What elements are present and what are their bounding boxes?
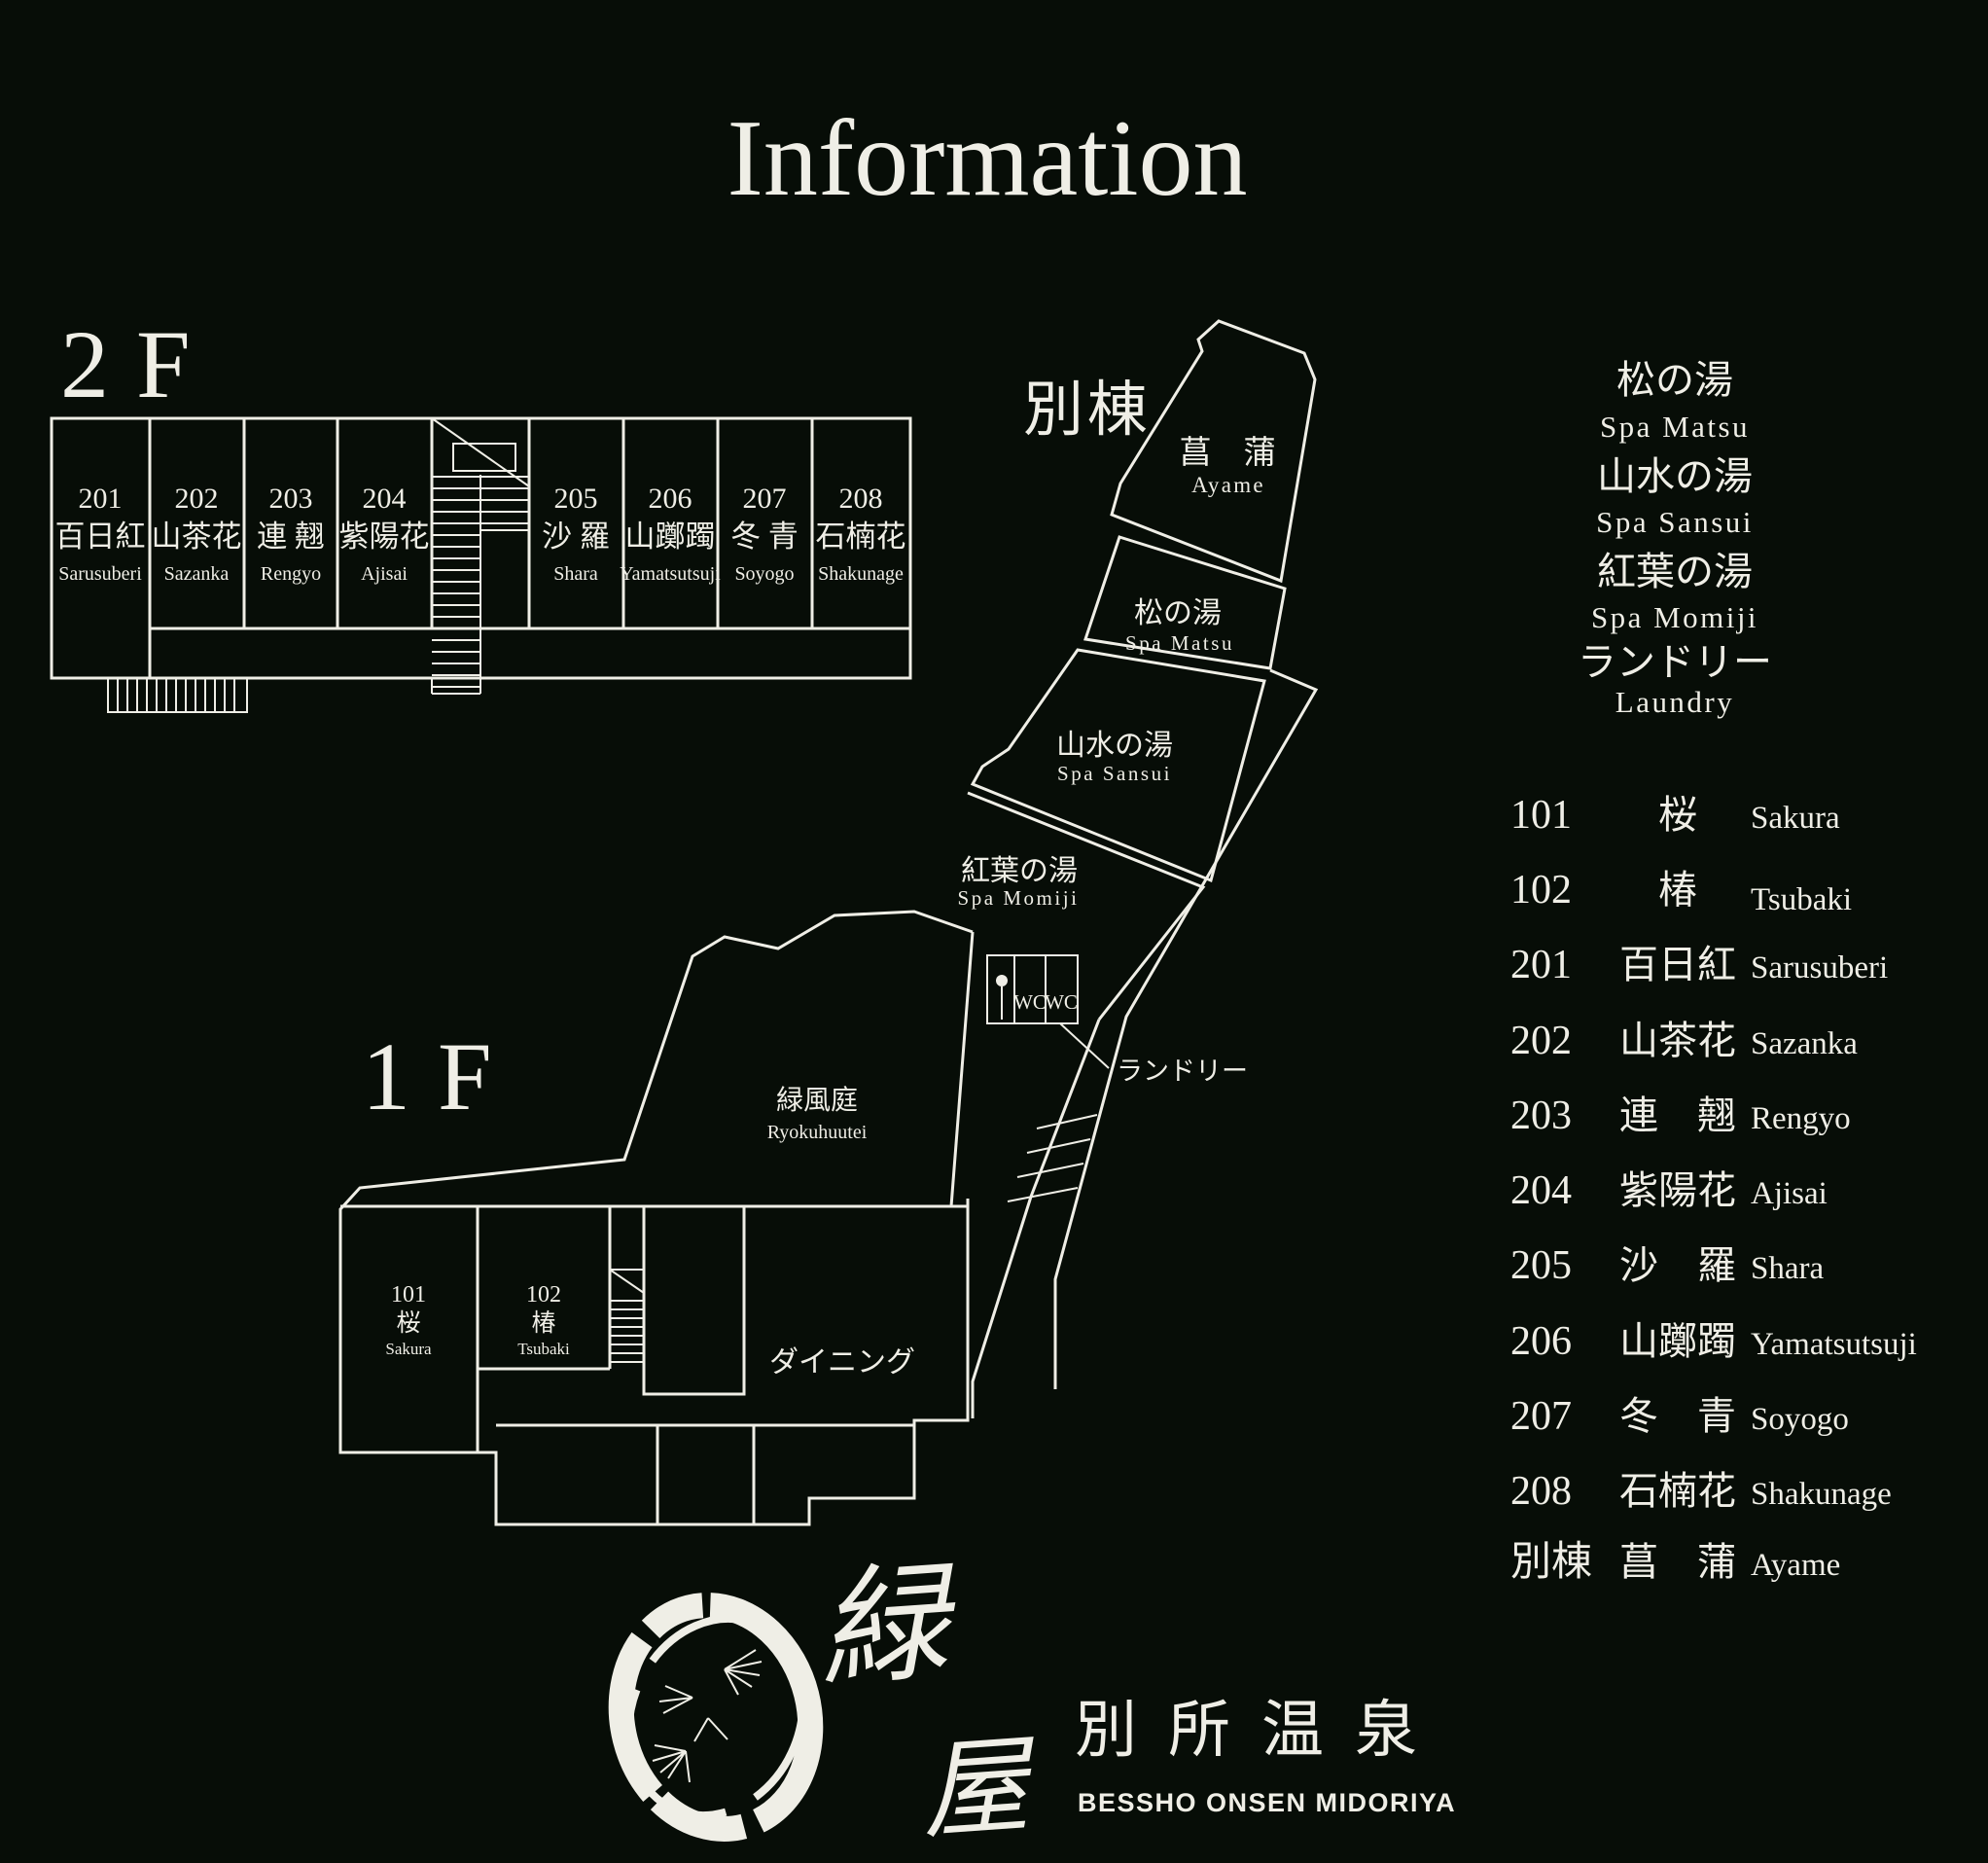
list-number: 208 [1510,1469,1572,1514]
list-number: 202 [1510,1019,1572,1063]
floor1-room-101: 101 桜 Sakura [385,1282,432,1358]
room-kanji: 冬 青 [730,519,799,554]
floor2-room-207: 207 冬 青 Soyogo [730,483,799,585]
list-number: 204 [1510,1168,1572,1213]
list-number: 207 [1510,1394,1572,1439]
room-list-row-101: 101 桜 Sakura [1510,793,1840,838]
walkway-ramp-hatch [1008,1115,1097,1201]
room-number: 101 [391,1282,426,1308]
list-kanji: 菖 蒲 [1619,1540,1736,1584]
list-romaji: Soyogo [1751,1402,1849,1437]
annex-plan: 別棟 菖 蒲 Ayame [1023,321,1315,581]
room-romaji: Sakura [385,1340,432,1358]
room-number: 208 [839,483,883,515]
room-romaji: Yamatsutsuji [620,563,721,585]
list-number: 205 [1510,1243,1572,1288]
room-list-row-207: 207 冬 青 Soyogo [1510,1394,1849,1439]
legend-spa-matsu-jp: 松の湯 [1616,358,1733,402]
room-romaji: Rengyo [261,563,321,585]
floor1-lower-walls [496,1425,914,1524]
room-romaji: Ajisai [361,563,408,585]
room-number: 203 [269,483,313,515]
room-number: 202 [175,483,219,515]
list-romaji: Sarusuberi [1751,950,1888,985]
room-list-row-201: 201 百日紅 Sarusuberi [1510,943,1888,987]
floor2-room-202: 202 山茶花 Sazanka [152,483,242,585]
laundry-label: ランドリー [1117,1057,1248,1086]
room-kanji: 紫陽花 [339,519,430,554]
list-kanji: 紫陽花 [1619,1168,1736,1212]
logo-kanji-midori: 緑 [814,1551,963,1703]
wc-label-2: WC [1045,990,1078,1014]
spa-matsu-jp: 松の湯 [1134,597,1222,629]
room-kanji: 石楠花 [816,519,906,554]
spa-momiji-jp: 紅葉の湯 [961,855,1078,887]
room-kanji: 山茶花 [152,519,242,554]
floor2-room-204: 204 紫陽花 Ajisai [339,483,430,585]
list-number: 102 [1510,868,1572,913]
list-kanji: 山躑躅 [1619,1319,1736,1363]
room-romaji: Sarusuberi [58,563,142,585]
list-kanji: 桜 [1658,793,1697,837]
legend-spa-sansui-en: Spa Sansui [1596,505,1754,539]
garden-jp: 緑風庭 [776,1085,858,1116]
room-list-row-208: 208 石楠花 Shakunage [1510,1469,1892,1514]
list-kanji: 山茶花 [1619,1019,1736,1062]
floor2-room-201: 201 百日紅 Sarusuberi [55,483,146,585]
room-kanji: 桜 [396,1309,420,1337]
list-kanji: 百日紅 [1619,943,1736,986]
list-romaji: Yamatsutsuji [1751,1327,1917,1362]
room-number: 207 [743,483,787,515]
floor2-room-208: 208 石楠花 Shakunage [816,483,906,585]
list-romaji: Sakura [1751,801,1840,836]
room-kanji: 百日紅 [55,519,146,554]
room-romaji: Shakunage [818,563,904,585]
room-number: 206 [649,483,692,515]
list-kanji: 椿 [1658,868,1697,912]
list-romaji: Ajisai [1751,1176,1828,1211]
legend-spa-momiji-jp: 紅葉の湯 [1597,550,1753,593]
list-number: 101 [1510,793,1572,838]
floor2-room-205: 205 沙 羅 Shara [542,483,610,585]
room-kanji: 連 翹 [257,519,325,554]
floor1-garden-right-edge [951,932,973,1206]
spa-sansui-en: Spa Sansui [1057,762,1172,785]
room-number: 204 [363,483,407,515]
floor2-plan: 2F 201 百日紅 Sarusuberi 202 山茶花 Sazanka 20… [52,310,910,712]
room-list-row-203: 203 連 翹 Rengyo [1510,1093,1851,1138]
logo-name-jp: 別所温泉 [1075,1696,1448,1765]
logo-brush-ring-inner [597,1590,834,1844]
spa-sansui-jp: 山水の湯 [1056,730,1173,762]
room-list-row-205: 205 沙 羅 Shara [1510,1243,1824,1288]
floor1-room-102: 102 椿 Tsubaki [517,1282,570,1358]
spa-momiji-en: Spa Momiji [958,886,1080,910]
list-kanji: 冬 青 [1619,1394,1736,1438]
logo-name-en: BESSHO ONSEN MIDORIYA [1078,1788,1456,1817]
legend-laundry-jp: ランドリー [1578,640,1772,684]
list-kanji: 沙 羅 [1619,1243,1736,1287]
legend-spa-matsu-en: Spa Matsu [1600,410,1750,444]
floor2-room-206: 206 山躑躅 Yamatsutsuji [620,483,721,585]
room-number: 201 [79,483,123,515]
floor2-label: 2F [60,310,218,418]
legend-spa-momiji-en: Spa Momiji [1591,600,1758,634]
page-title: Information [728,98,1248,219]
annex-label: 別棟 [1023,377,1151,444]
floor2-stairs [432,418,529,694]
dining-label: ダイニング [769,1346,915,1379]
list-romaji: Sazanka [1751,1026,1858,1061]
logo: 緑 屋 別所温泉 BESSHO ONSEN MIDORIYA [597,1551,1456,1852]
room-romaji: Sazanka [164,563,230,585]
room-list-row-204: 204 紫陽花 Ajisai [1510,1168,1828,1213]
logo-kanji-ya: 屋 [917,1726,1042,1852]
room-kanji: 椿 [531,1309,555,1337]
floor1-plan: 1F 緑風庭 Ryokuhuutei ダイニング 101 桜 Sakura 10… [340,912,973,1524]
list-number: 206 [1510,1319,1572,1364]
floor1-label: 1F [362,1022,519,1130]
room-kanji: 山躑躅 [625,519,716,554]
list-kanji: 連 翹 [1619,1093,1736,1137]
floor2-exterior-stairs [108,678,247,712]
room-romaji: Shara [553,563,598,585]
room-list-row-annex: 別棟 菖 蒲 Ayame [1510,1540,1840,1585]
legend-spa-sansui-jp: 山水の湯 [1597,454,1753,498]
legend: 松の湯 Spa Matsu 山水の湯 Spa Sansui 紅葉の湯 Spa M… [1578,358,1772,719]
room-number: 205 [554,483,598,515]
list-romaji: Shara [1751,1251,1824,1286]
list-romaji: Ayame [1751,1548,1840,1583]
floor2-room-203: 203 連 翹 Rengyo [257,483,325,585]
list-number: 201 [1510,943,1572,987]
room-list-row-202: 202 山茶花 Sazanka [1510,1019,1858,1063]
list-number: 203 [1510,1093,1572,1138]
annex-room-romaji: Ayame [1191,473,1265,497]
floor1-stairs [610,1270,644,1362]
room-list-row-206: 206 山躑躅 Yamatsutsuji [1510,1319,1917,1364]
information-poster: Information 2F 201 百日紅 Sarusuberi 202 山茶… [0,0,1988,1863]
room-romaji: Soyogo [734,563,794,585]
logo-pine-sprigs [653,1650,762,1782]
room-romaji: Tsubaki [517,1340,570,1358]
list-romaji: Shakunage [1751,1477,1892,1512]
wc-dot-marker [996,975,1008,986]
garden-en: Ryokuhuutei [767,1122,868,1143]
spa-block: 松の湯 Spa Matsu 山水の湯 Spa Sansui 紅葉の湯 Spa M… [958,537,1316,1418]
list-number: 別棟 [1510,1540,1592,1585]
room-number: 102 [526,1282,561,1308]
spa-matsu-en: Spa Matsu [1125,631,1234,655]
room-kanji: 沙 羅 [542,519,610,554]
wc-label-1: WC [1013,990,1047,1014]
legend-laundry-en: Laundry [1615,685,1734,719]
map-canvas: Information 2F 201 百日紅 Sarusuberi 202 山茶… [0,0,1988,1863]
list-romaji: Tsubaki [1751,882,1852,917]
list-romaji: Rengyo [1751,1101,1851,1136]
room-list: 101 桜 Sakura 102 椿 Tsubaki 201 百日紅 Sarus… [1510,793,1917,1585]
list-kanji: 石楠花 [1619,1469,1736,1513]
room-list-row-102: 102 椿 Tsubaki [1510,868,1852,917]
floor1-inner-room [644,1206,744,1394]
annex-room-kanji: 菖 蒲 [1180,435,1276,471]
